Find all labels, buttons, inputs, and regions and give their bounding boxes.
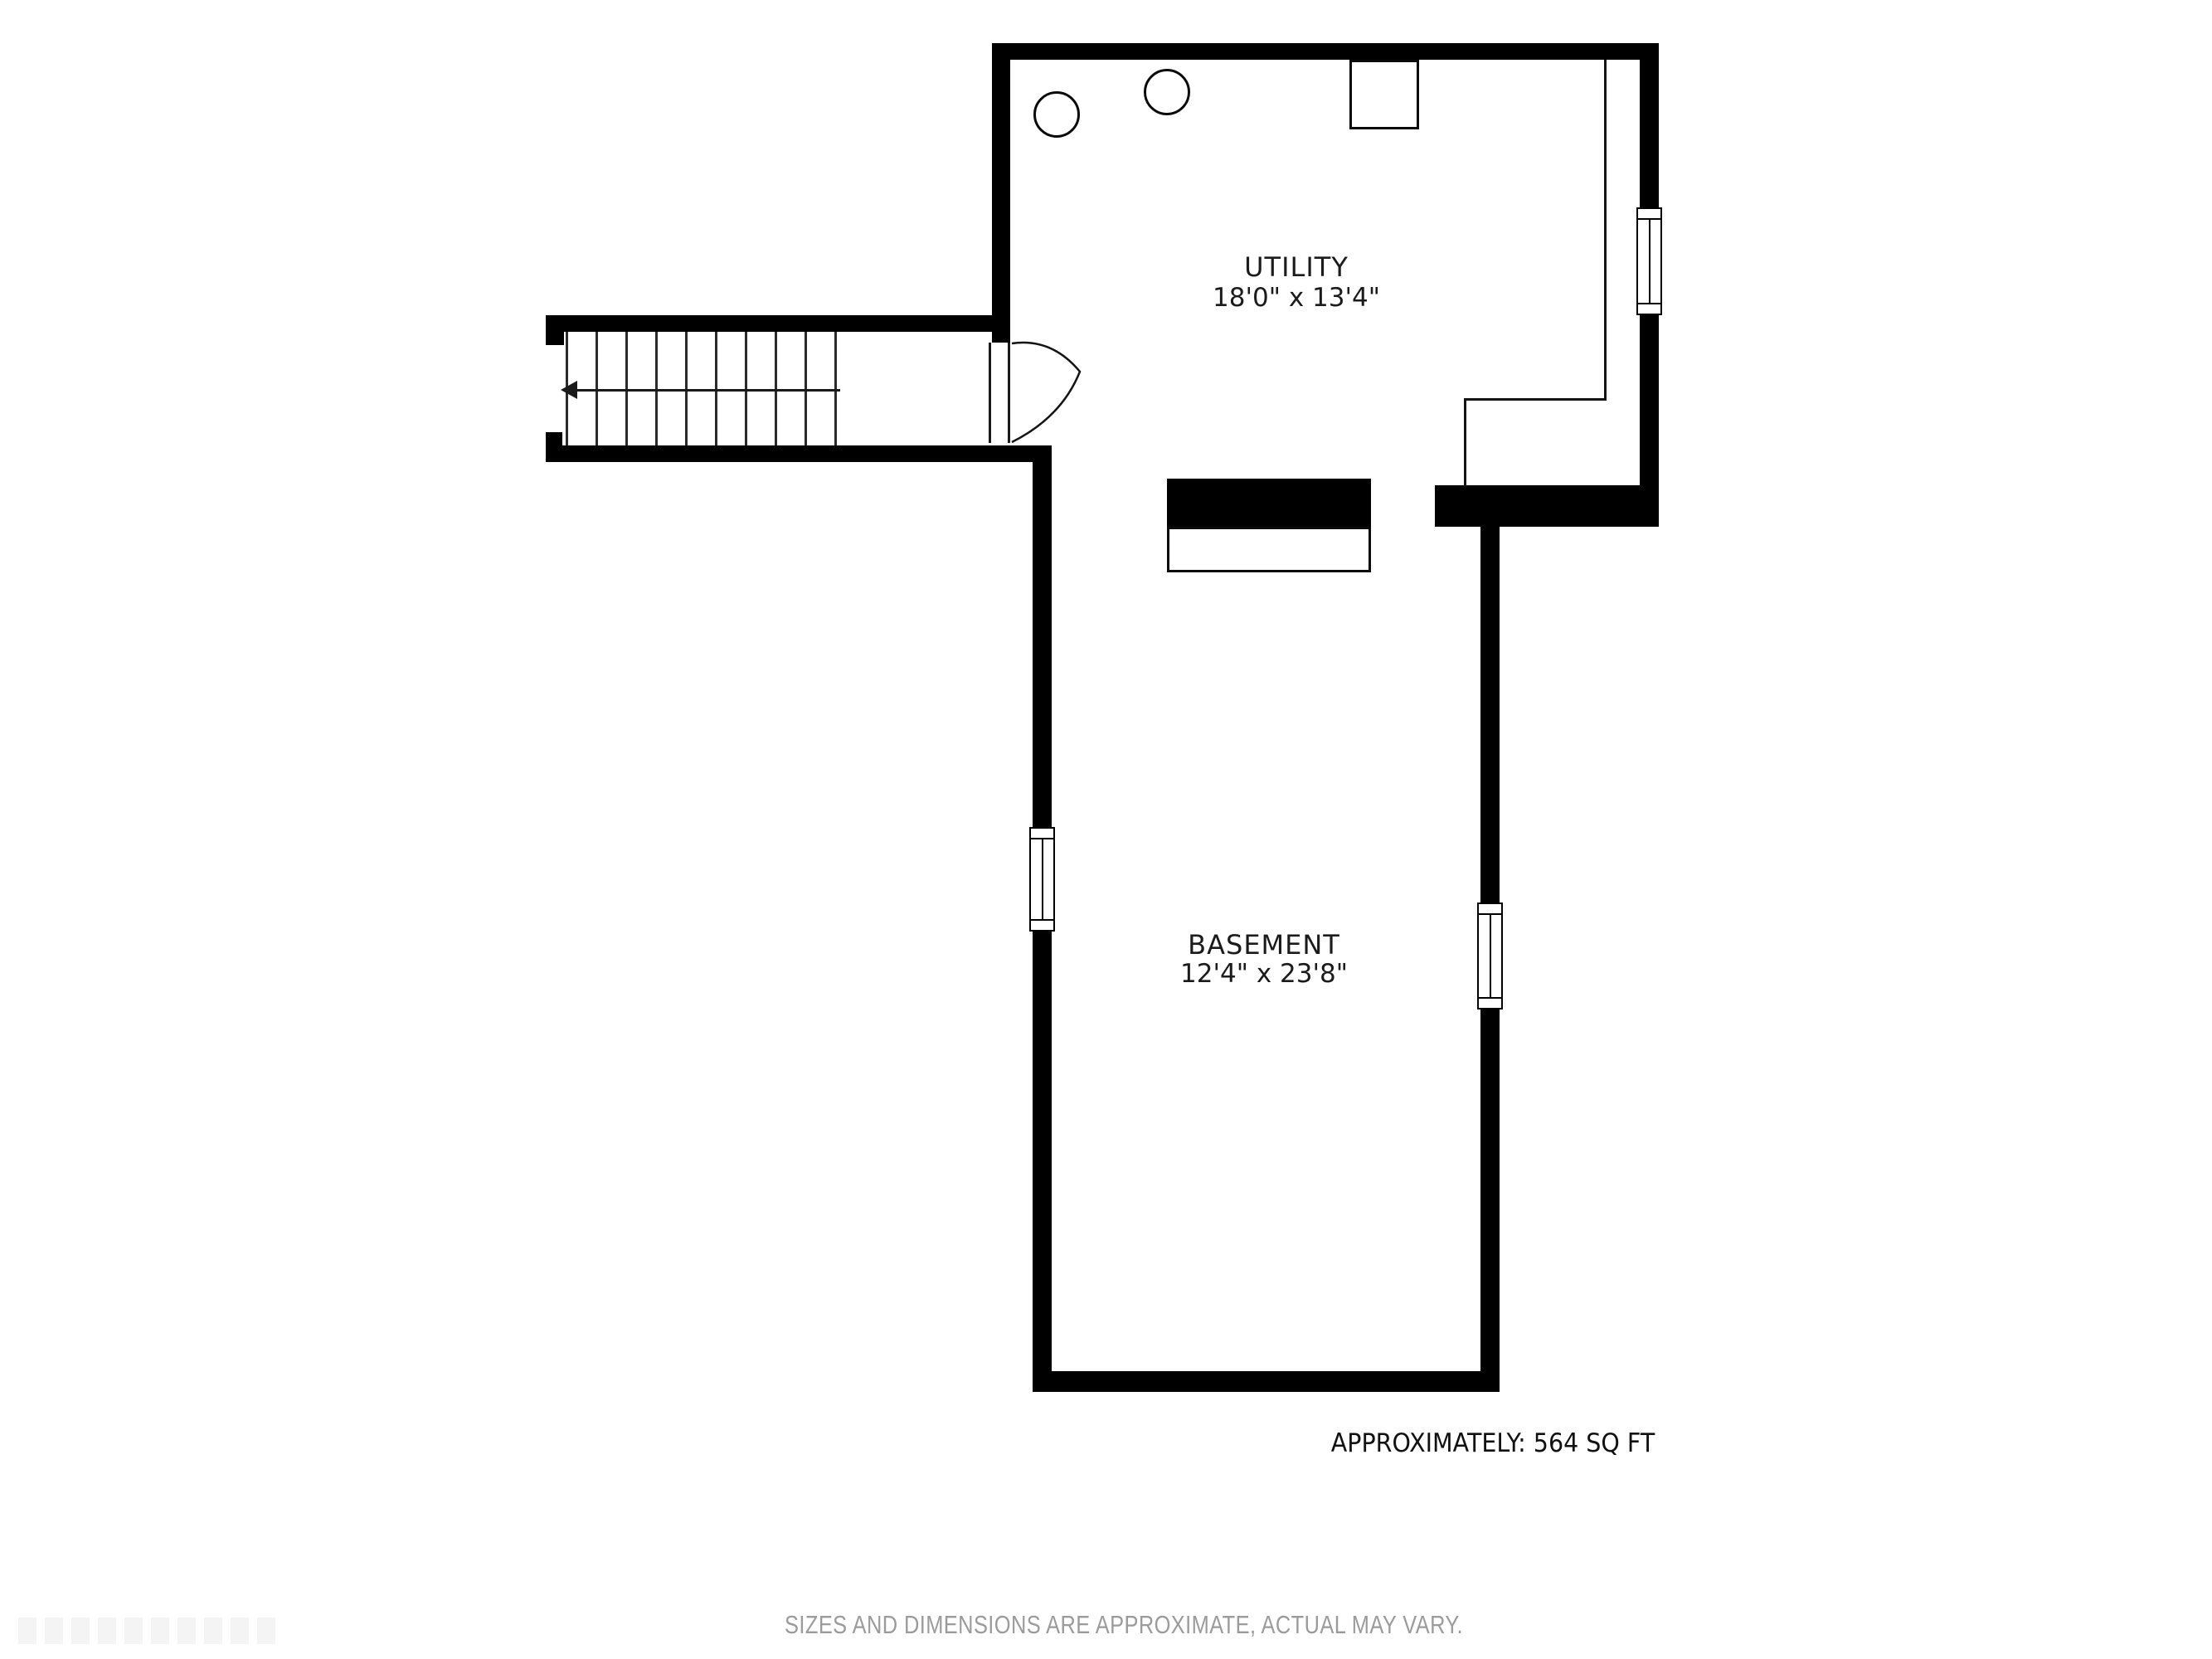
watermark-logo bbox=[18, 1618, 275, 1644]
room-dim-basement: 12'4" x 23'8" bbox=[1180, 959, 1348, 989]
wall-basement-left-lower bbox=[1033, 932, 1052, 1392]
wall-stairs-bottom bbox=[546, 445, 1052, 462]
window-utility-right-icon bbox=[1636, 207, 1662, 315]
wall-utility-right-lower bbox=[1640, 315, 1659, 485]
wall-basement-right-upper bbox=[1480, 498, 1500, 902]
window-basement-right-icon bbox=[1477, 902, 1503, 1010]
floor-plan-canvas: UTILITY 18'0" x 13'4" BASEMENT 12'4" x 2… bbox=[0, 0, 2212, 1659]
workbench-icon bbox=[1167, 527, 1371, 572]
window-sill-icon bbox=[1031, 919, 1053, 921]
half-wall-segment bbox=[1167, 479, 1371, 527]
wall-stairs-top bbox=[546, 315, 1010, 332]
room-dim-utility: 18'0" x 13'4" bbox=[1213, 283, 1380, 313]
approx-area-label: APPROXIMATELY: 564 SQ FT bbox=[1331, 1428, 1655, 1458]
stair-direction-arrow-line bbox=[576, 389, 840, 392]
wall-utility-right-upper bbox=[1640, 43, 1659, 209]
water-tank-icon bbox=[1144, 69, 1190, 115]
partition-line-horizontal bbox=[1464, 398, 1607, 401]
partition-line-vertical-left bbox=[1464, 398, 1466, 487]
window-pane-icon bbox=[1649, 220, 1650, 303]
room-label-utility: UTILITY bbox=[1244, 251, 1349, 283]
wall-stairs-top-end-stub bbox=[546, 332, 564, 345]
window-pane-icon bbox=[1042, 839, 1043, 919]
room-label-basement: BASEMENT bbox=[1188, 929, 1340, 961]
wall-utility-bottom-right-slab bbox=[1435, 485, 1659, 527]
water-heater-icon bbox=[1033, 91, 1080, 138]
disclaimer-text: SIZES AND DIMENSIONS ARE APPROXIMATE, AC… bbox=[785, 1610, 1463, 1640]
wall-basement-right-lower bbox=[1480, 1010, 1500, 1392]
window-sill-icon bbox=[1638, 303, 1660, 304]
door-swing-arc-icon bbox=[1010, 336, 1093, 452]
wall-utility-left bbox=[992, 43, 1010, 343]
window-pane-icon bbox=[1490, 915, 1491, 997]
door-leaf-line bbox=[989, 343, 991, 443]
stair-direction-arrow-icon bbox=[561, 381, 577, 399]
furnace-box-icon bbox=[1349, 60, 1419, 129]
window-sill-icon bbox=[1479, 997, 1501, 999]
window-basement-left-icon bbox=[1029, 827, 1055, 932]
wall-utility-top bbox=[992, 43, 1659, 60]
wall-basement-bottom bbox=[1033, 1371, 1500, 1392]
wall-basement-left-upper bbox=[1033, 445, 1052, 827]
partition-line-vertical-right bbox=[1604, 60, 1607, 400]
wall-stairs-bottom-end-stub bbox=[546, 432, 562, 445]
